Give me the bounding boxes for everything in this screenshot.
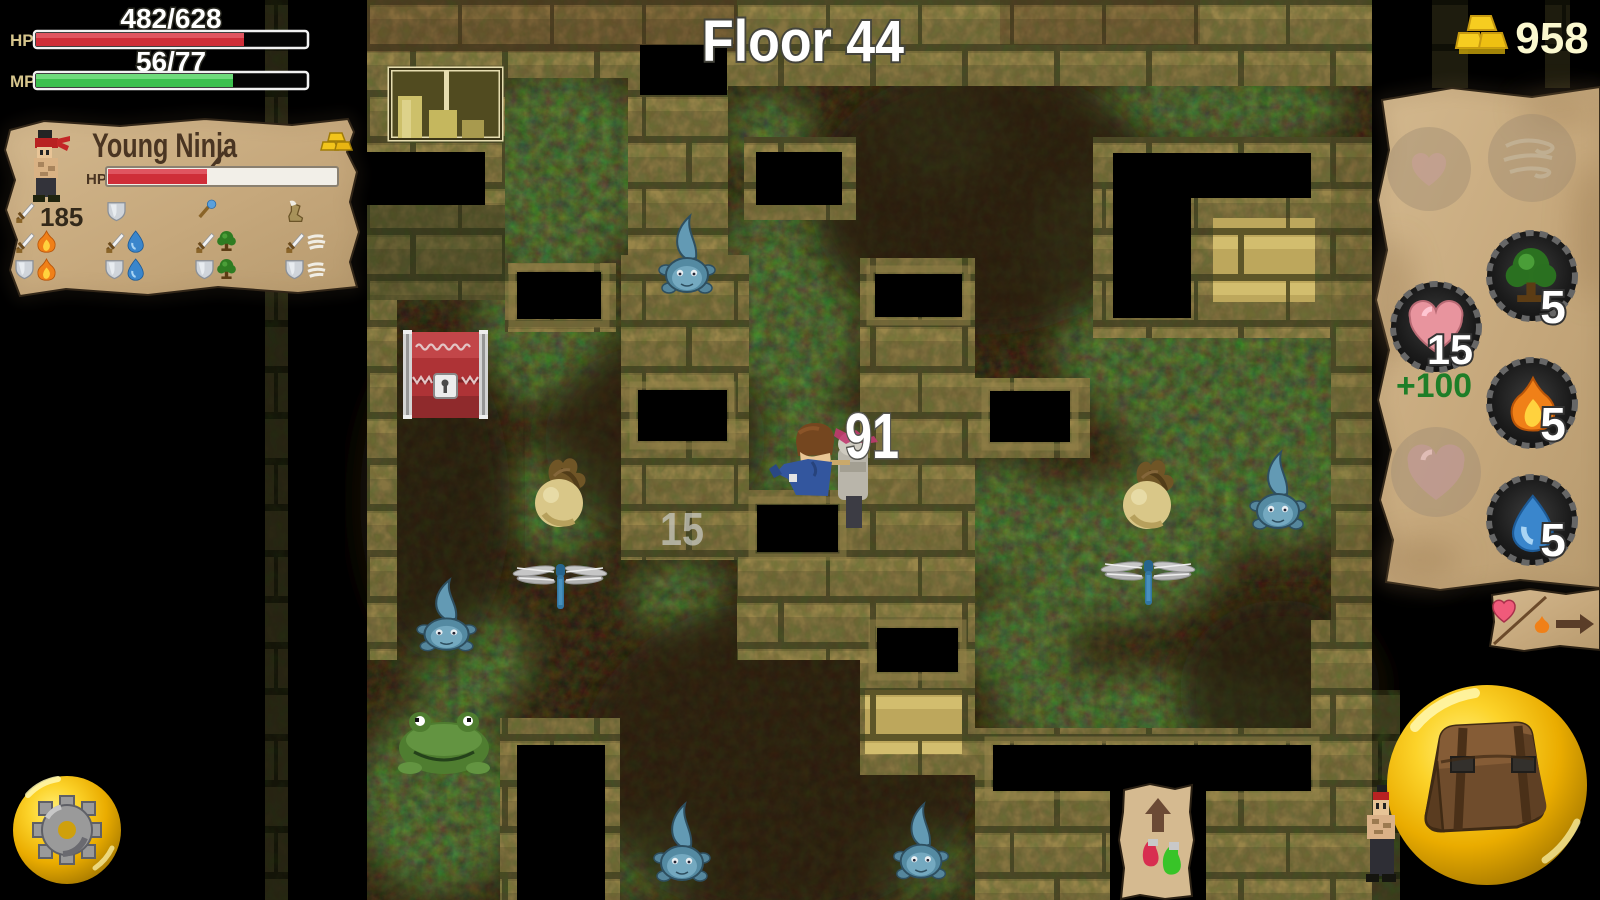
svg-text:482/628: 482/628 — [120, 3, 221, 34]
svg-text:5: 5 — [1540, 281, 1566, 333]
svg-text:15: 15 — [1427, 326, 1473, 373]
svg-text:HP: HP — [10, 31, 34, 50]
svg-text:+100: +100 — [1396, 367, 1472, 405]
svg-text:185: 185 — [40, 202, 83, 232]
svg-text:91: 91 — [845, 400, 899, 472]
svg-text:Floor 44: Floor 44 — [702, 9, 904, 74]
svg-text:15: 15 — [660, 503, 704, 555]
svg-text:Young Ninja: Young Ninja — [92, 127, 238, 165]
svg-text:5: 5 — [1540, 398, 1566, 450]
svg-text:MP: MP — [10, 72, 36, 91]
svg-text:5: 5 — [1540, 514, 1566, 566]
svg-text:958: 958 — [1515, 14, 1588, 63]
svg-text:HP: HP — [86, 171, 107, 188]
